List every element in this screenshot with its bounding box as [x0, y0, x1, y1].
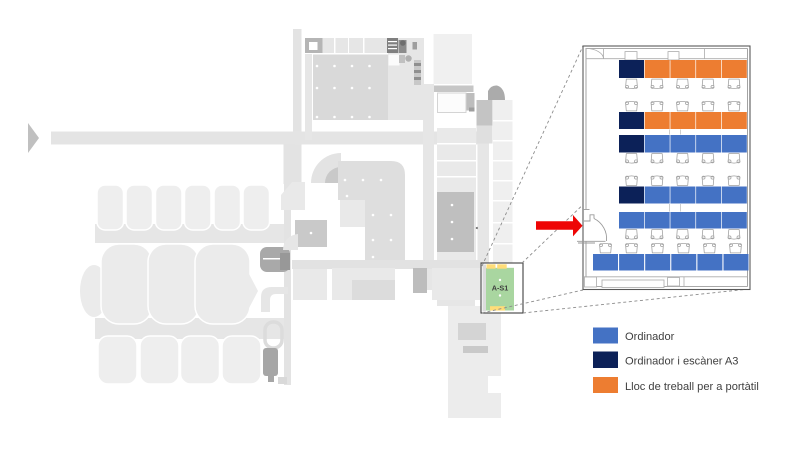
svg-text:Lloc de treball per a portàtil: Lloc de treball per a portàtil	[625, 381, 759, 393]
svg-text:A-S1: A-S1	[492, 283, 509, 292]
svg-text:Ordinador i escàner A3: Ordinador i escàner A3	[625, 356, 738, 368]
svg-text:Ordinador: Ordinador	[625, 331, 675, 343]
